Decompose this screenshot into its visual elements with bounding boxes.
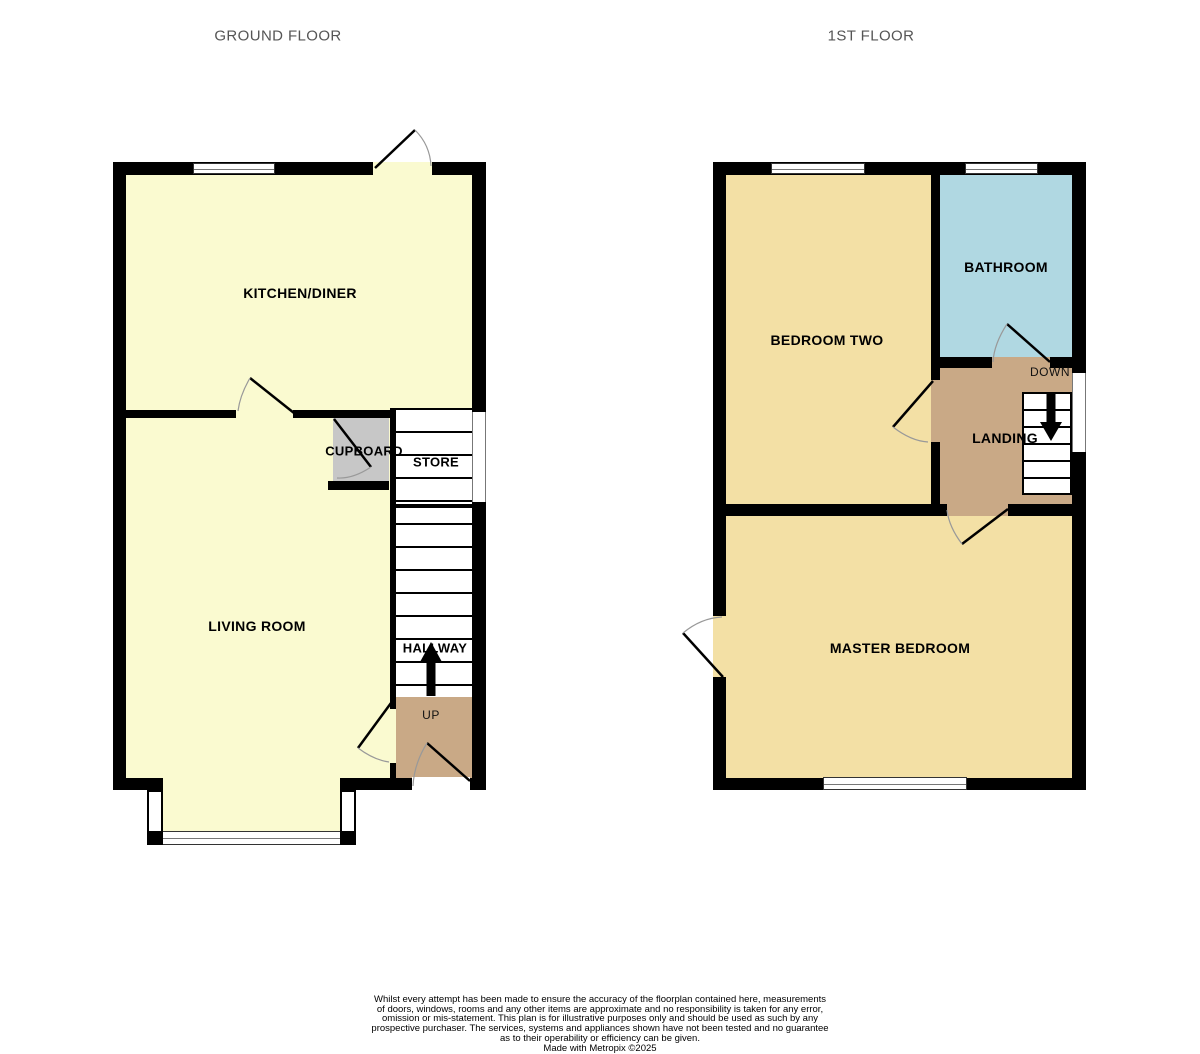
credit-line: Made with Metropix ©2025 xyxy=(370,1044,830,1054)
floorplan-canvas: GROUND FLOOR KITCHEN/DINER LIVING ROOM C… xyxy=(0,0,1200,1054)
doors-and-arrows-layer xyxy=(0,0,1200,1054)
disclaimer: Whilst every attempt has been made to en… xyxy=(370,995,830,1053)
